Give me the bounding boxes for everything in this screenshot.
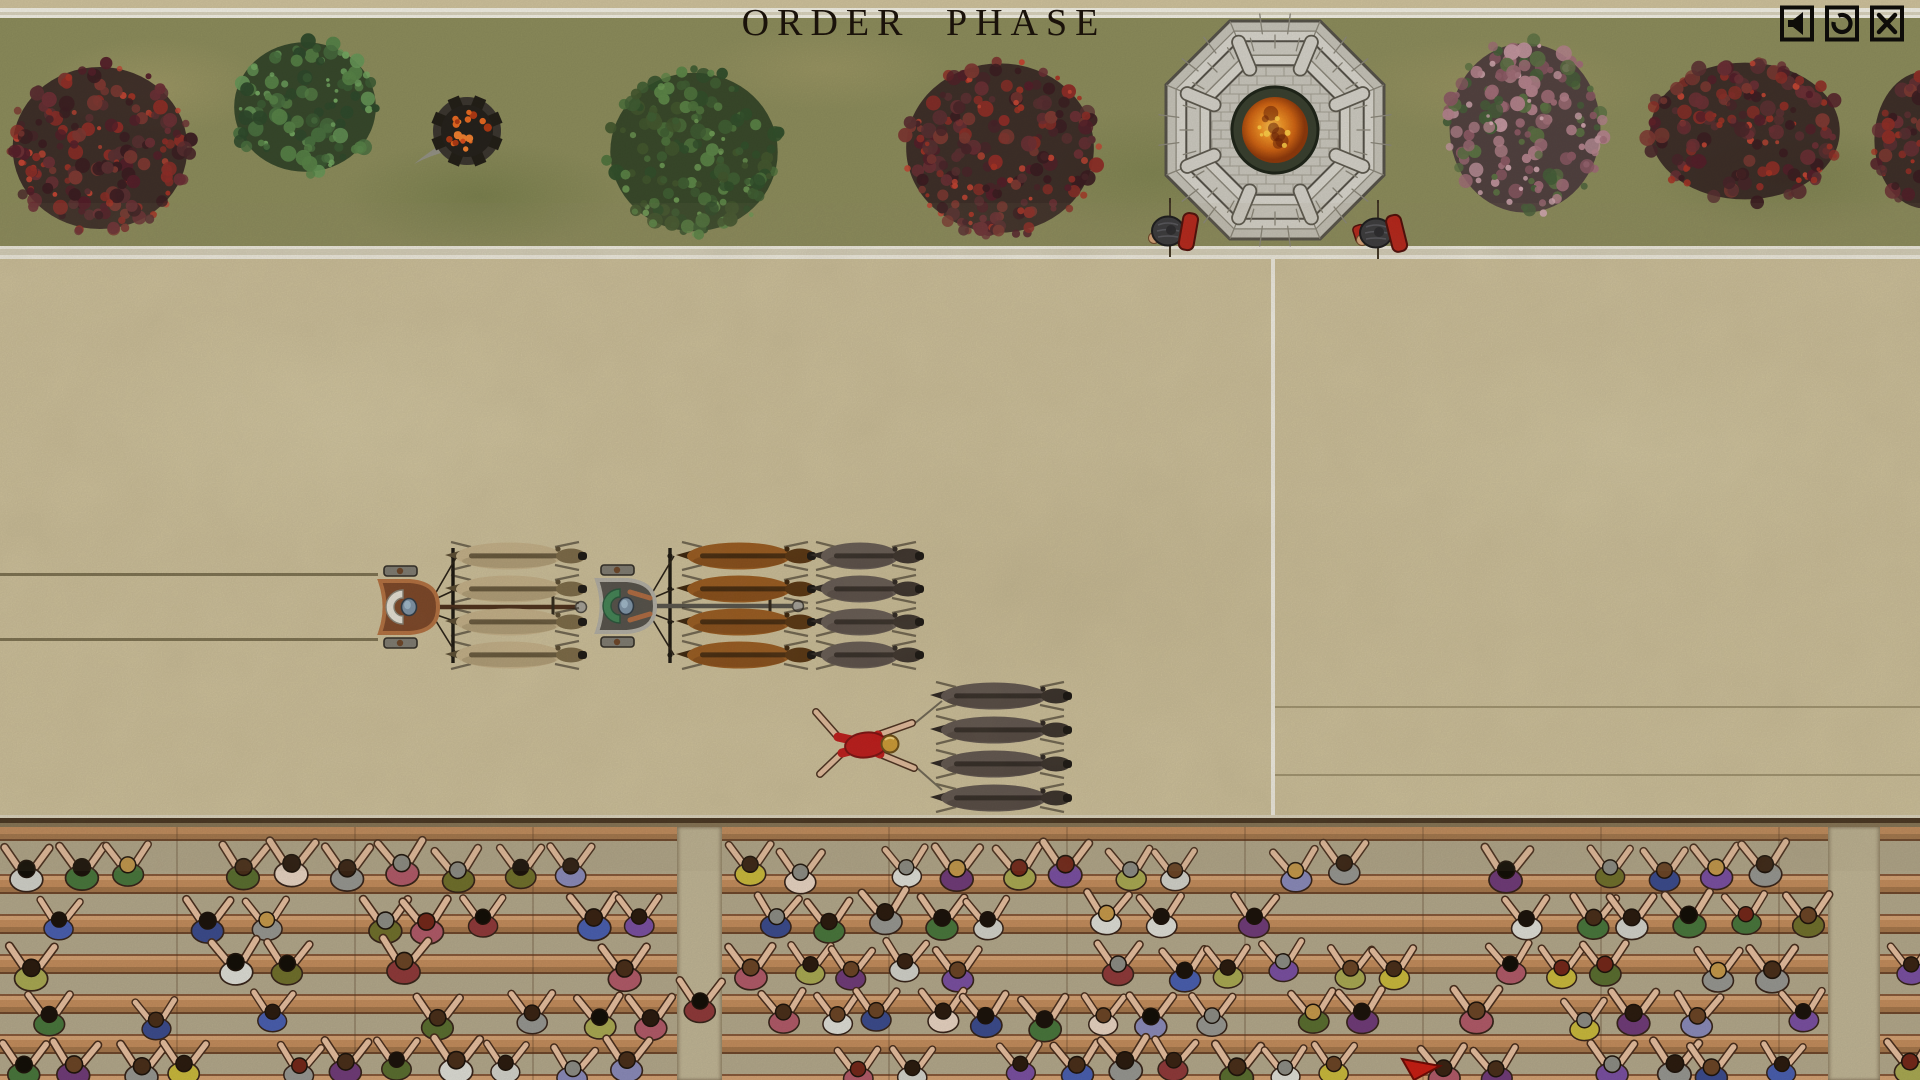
- stands: [0, 827, 1920, 1080]
- tree-red: [1870, 67, 1920, 210]
- lane-line: [0, 638, 378, 641]
- tree-red: [7, 57, 198, 236]
- game-viewport: ORDER PHASE: [0, 0, 1920, 1080]
- phase-title: ORDER PHASE: [424, 1, 1424, 45]
- tree-red: [898, 57, 1104, 240]
- stands-aisle: [1828, 827, 1880, 1080]
- speaker-icon: [1780, 5, 1814, 42]
- lap-tower: [1159, 14, 1391, 246]
- toolbar: [1780, 5, 1904, 42]
- mute-button[interactable]: [1780, 5, 1814, 42]
- stands-aisle: [677, 827, 722, 1080]
- restart-icon: [1825, 5, 1859, 42]
- tree-pink: [1442, 33, 1610, 216]
- close-icon: [1870, 5, 1904, 42]
- lane-line: [1275, 774, 1920, 776]
- finish-line: [1271, 259, 1275, 815]
- tree-green: [601, 65, 784, 240]
- tree-green-bush: [233, 33, 380, 178]
- guard-figure: [1352, 200, 1409, 259]
- restart-button[interactable]: [1825, 5, 1859, 42]
- guard-figure: [1149, 198, 1200, 257]
- close-button[interactable]: [1870, 5, 1904, 42]
- lane-line: [1275, 706, 1920, 708]
- small-brazier: [414, 95, 503, 166]
- tree-red: [1639, 57, 1841, 209]
- stands-edge: [0, 815, 1920, 827]
- lane-line: [0, 573, 378, 576]
